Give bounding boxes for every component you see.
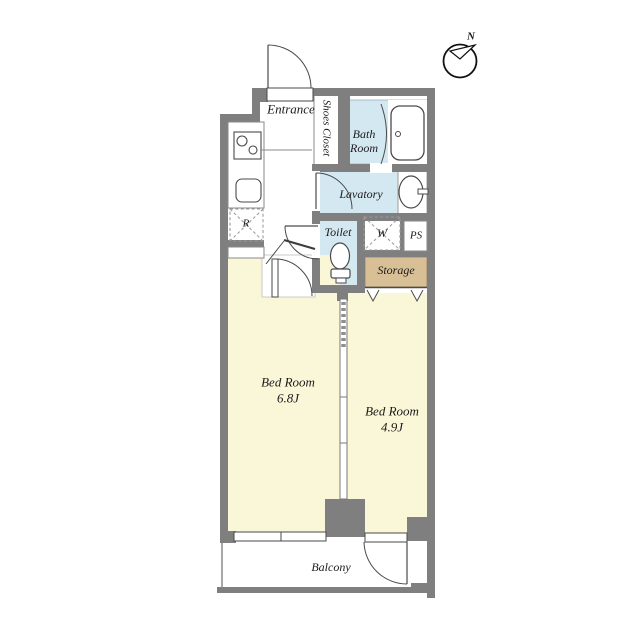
bedroom2-label: Bed Room [365,405,419,420]
storage-label: Storage [377,264,414,278]
entrance-label: Entrance [267,103,315,118]
kitchen-counter [228,122,264,208]
bedroom1-window [234,532,326,541]
bath-room-label: Bath Room [341,128,387,156]
bedroom1-label: Bed Room [261,376,315,391]
stove-burner-small [249,146,257,154]
bathtub [391,106,424,160]
sliding-partition [340,299,347,499]
compass-north-label: N [467,31,475,44]
kitchen-window-band [228,247,264,258]
balcony-door [364,533,407,584]
toilet-label: Toilet [325,226,352,240]
floor-plan: Entrance Shoes Closet Bath Room Lavatory… [0,0,640,640]
washing-machine-label: W [377,227,387,241]
toilet-fixture [331,243,351,283]
lavatory-label: Lavatory [339,188,382,202]
entrance-door [267,45,313,101]
pipe-space-label: PS [410,230,422,243]
refrigerator-label: R [243,218,250,231]
stove [234,132,261,159]
compass-north-icon [444,45,477,78]
floor-plan-drawing [0,0,640,640]
bedroom1-size: 6.8J [277,392,299,407]
stove-burner-large [237,136,247,146]
bedroom2-size: 4.9J [381,421,403,436]
shoes-closet-label: Shoes Closet [320,100,333,157]
balcony-label: Balcony [311,561,350,575]
kitchen-sink [236,179,261,202]
